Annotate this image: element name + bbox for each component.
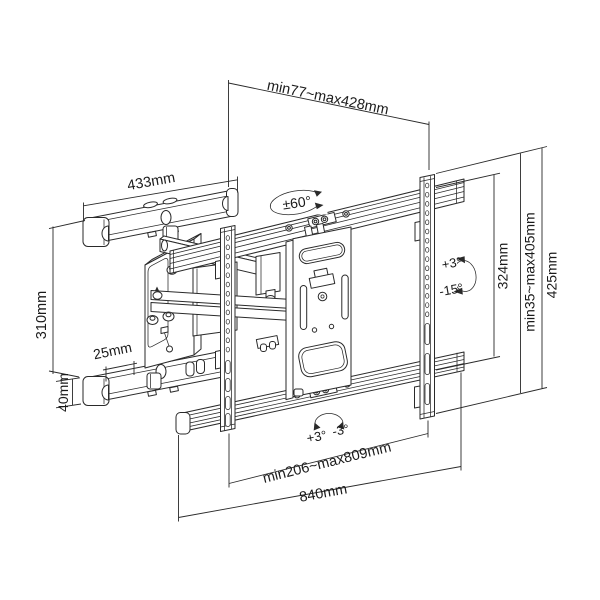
vesa-plate [286, 223, 351, 399]
dim-rail-height-label: 40mm [55, 373, 71, 412]
dim-bracket-height-label: 425mm [544, 252, 560, 299]
tilt-up-angle-label: +3° [441, 254, 463, 272]
dim-width-range-label: min206~max809mm [261, 439, 393, 486]
tv-mount-technical-drawing: 433mm min77~max428mm ±60° +3° -15° 324mm… [0, 0, 600, 600]
dim-total-width-label: 840mm [298, 481, 348, 505]
level-angle-left-label: +3° [305, 427, 328, 446]
level-angle-right-label: -3° [331, 421, 350, 439]
dim-rail-offset-label: 25mm [92, 339, 133, 362]
diagram-canvas: 433mm min77~max428mm ±60° +3° -15° 324mm… [0, 0, 600, 600]
swivel-angle-label: ±60° [281, 193, 312, 213]
tilt-down-angle-label: -15° [438, 280, 464, 299]
dim-wall-plate-height-label: 310mm [34, 291, 50, 339]
dim-depth-range-label: min77~max428mm [266, 78, 390, 119]
dim-wall-rail-length-label: 433mm [126, 170, 176, 194]
wall-rail-top [83, 189, 238, 247]
dim-height-range-label: min35~max405mm [522, 212, 538, 331]
dim-vesa-height-label: 324mm [495, 243, 511, 290]
